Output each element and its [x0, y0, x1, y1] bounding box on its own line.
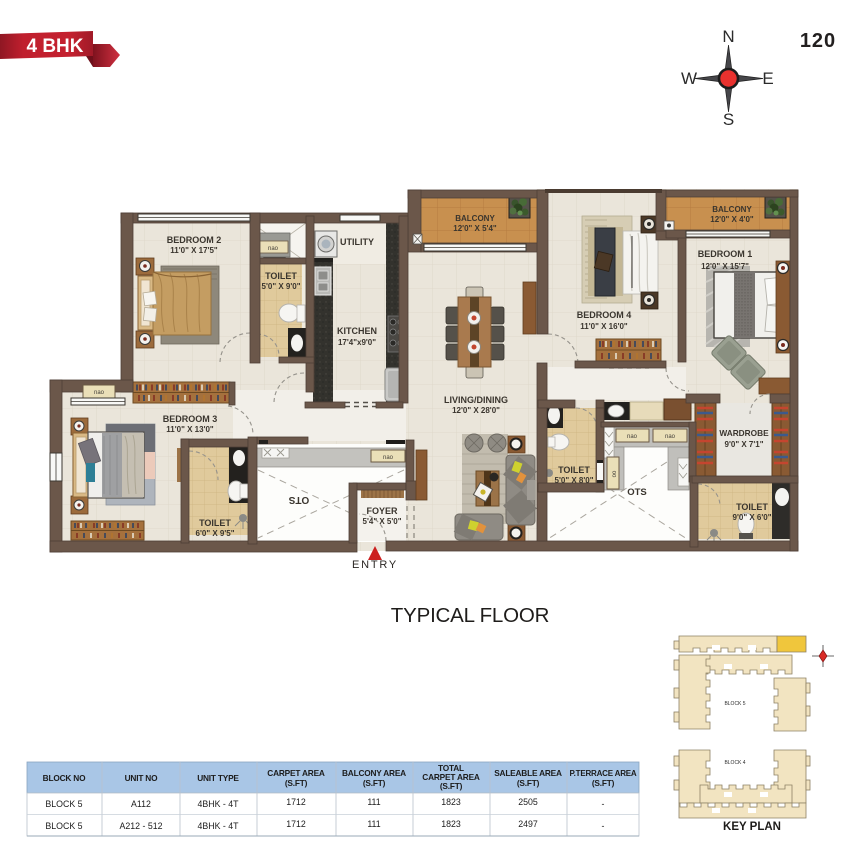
- svg-text:KEY PLAN: KEY PLAN: [723, 821, 781, 833]
- svg-text:(S.FT): (S.FT): [592, 778, 615, 788]
- svg-text:OTS: OTS: [288, 494, 309, 505]
- svg-text:P.TERRACE AREA: P.TERRACE AREA: [570, 769, 637, 778]
- svg-text:BLOCK 5: BLOCK 5: [45, 799, 82, 809]
- svg-text:(S.FT): (S.FT): [363, 778, 386, 788]
- svg-text:1712: 1712: [286, 819, 306, 829]
- svg-text:S: S: [723, 110, 734, 129]
- svg-text:BEDROOM 3: BEDROOM 3: [163, 414, 218, 424]
- svg-text:4BHK - 4T: 4BHK - 4T: [197, 821, 239, 831]
- svg-text:2505: 2505: [518, 797, 538, 807]
- svg-text:(S.FT): (S.FT): [285, 778, 308, 788]
- svg-text:UTILITY: UTILITY: [340, 237, 374, 247]
- svg-text:E: E: [762, 69, 773, 88]
- svg-text:FOYER: FOYER: [366, 506, 398, 516]
- svg-text:4 BHK: 4 BHK: [26, 36, 83, 57]
- svg-text:SALEABLE AREA: SALEABLE AREA: [494, 768, 562, 778]
- svg-text:ENTRY: ENTRY: [352, 559, 398, 571]
- svg-text:BEDROOM 1: BEDROOM 1: [698, 249, 753, 259]
- svg-text:11'0" X 13'0": 11'0" X 13'0": [166, 425, 214, 434]
- svg-text:9'0" X 7'1": 9'0" X 7'1": [725, 440, 764, 449]
- svg-text:12'0" X 5'4": 12'0" X 5'4": [453, 224, 497, 233]
- svg-text:KITCHEN: KITCHEN: [337, 326, 377, 336]
- svg-text:LIVING/DINING: LIVING/DINING: [444, 395, 508, 405]
- svg-text:nao: nao: [268, 246, 279, 252]
- svg-text:1823: 1823: [441, 819, 461, 829]
- svg-text:11'0" X 16'0": 11'0" X 16'0": [580, 322, 628, 331]
- svg-text:6'0" X 9'5": 6'0" X 9'5": [196, 529, 235, 538]
- svg-text:12'0" X 28'0": 12'0" X 28'0": [452, 406, 500, 415]
- svg-text:OTS: OTS: [627, 487, 647, 498]
- svg-text:5'0" X 9'0": 5'0" X 9'0": [262, 282, 301, 291]
- svg-text:nao: nao: [383, 455, 394, 461]
- svg-text:(S.FT): (S.FT): [517, 778, 540, 788]
- svg-text:UNIT TYPE: UNIT TYPE: [197, 773, 239, 783]
- svg-text:9'0" X 6'0": 9'0" X 6'0": [733, 513, 772, 522]
- svg-text:BALCONY: BALCONY: [455, 214, 495, 223]
- svg-text:11'0" X 17'5": 11'0" X 17'5": [170, 246, 218, 255]
- svg-text:TOILET: TOILET: [558, 465, 590, 475]
- svg-text:1823: 1823: [441, 797, 461, 807]
- svg-text:TOILET: TOILET: [199, 518, 231, 528]
- svg-text:oo: oo: [612, 470, 618, 477]
- svg-text:A212 - 512: A212 - 512: [119, 821, 162, 831]
- svg-text:120: 120: [800, 30, 836, 52]
- svg-text:BALCONY: BALCONY: [712, 205, 752, 214]
- svg-text:-: -: [602, 799, 605, 809]
- svg-text:-: -: [602, 821, 605, 831]
- svg-text:17'4"x9'0": 17'4"x9'0": [338, 338, 376, 347]
- svg-text:1712: 1712: [286, 797, 306, 807]
- svg-text:BEDROOM 4: BEDROOM 4: [577, 310, 632, 320]
- svg-text:12'0" X 15'7": 12'0" X 15'7": [701, 262, 749, 271]
- svg-text:TYPICAL FLOOR: TYPICAL FLOOR: [391, 604, 549, 627]
- svg-text:12'0" X 4'0": 12'0" X 4'0": [710, 215, 754, 224]
- svg-text:nao: nao: [627, 434, 638, 440]
- svg-text:111: 111: [367, 797, 380, 807]
- svg-text:TOILET: TOILET: [265, 271, 297, 281]
- svg-text:BALCONY AREA: BALCONY AREA: [342, 768, 406, 778]
- svg-text:WARDROBE: WARDROBE: [719, 428, 769, 438]
- svg-text:BLOCK NO: BLOCK NO: [43, 773, 86, 783]
- svg-text:nao: nao: [665, 434, 676, 440]
- svg-text:2497: 2497: [518, 819, 538, 829]
- svg-text:N: N: [722, 27, 734, 46]
- svg-text:5'0" X 8'0": 5'0" X 8'0": [555, 476, 594, 485]
- svg-text:W: W: [681, 69, 697, 88]
- svg-text:TOILET: TOILET: [736, 502, 768, 512]
- svg-text:A112: A112: [131, 799, 151, 809]
- svg-text:BLOCK 5: BLOCK 5: [45, 821, 82, 831]
- svg-text:nao: nao: [94, 390, 105, 396]
- svg-text:BEDROOM 2: BEDROOM 2: [167, 235, 222, 245]
- svg-text:111: 111: [367, 819, 380, 829]
- svg-text:BLOCK 4: BLOCK 4: [724, 760, 745, 766]
- svg-text:BLOCK 5: BLOCK 5: [724, 701, 745, 707]
- svg-text:CARPET AREA: CARPET AREA: [267, 768, 325, 778]
- svg-text:(S.FT): (S.FT): [440, 781, 463, 791]
- svg-text:4BHK - 4T: 4BHK - 4T: [197, 799, 239, 809]
- svg-text:5'4" X 5'0": 5'4" X 5'0": [363, 517, 402, 526]
- svg-text:UNIT NO: UNIT NO: [125, 773, 158, 783]
